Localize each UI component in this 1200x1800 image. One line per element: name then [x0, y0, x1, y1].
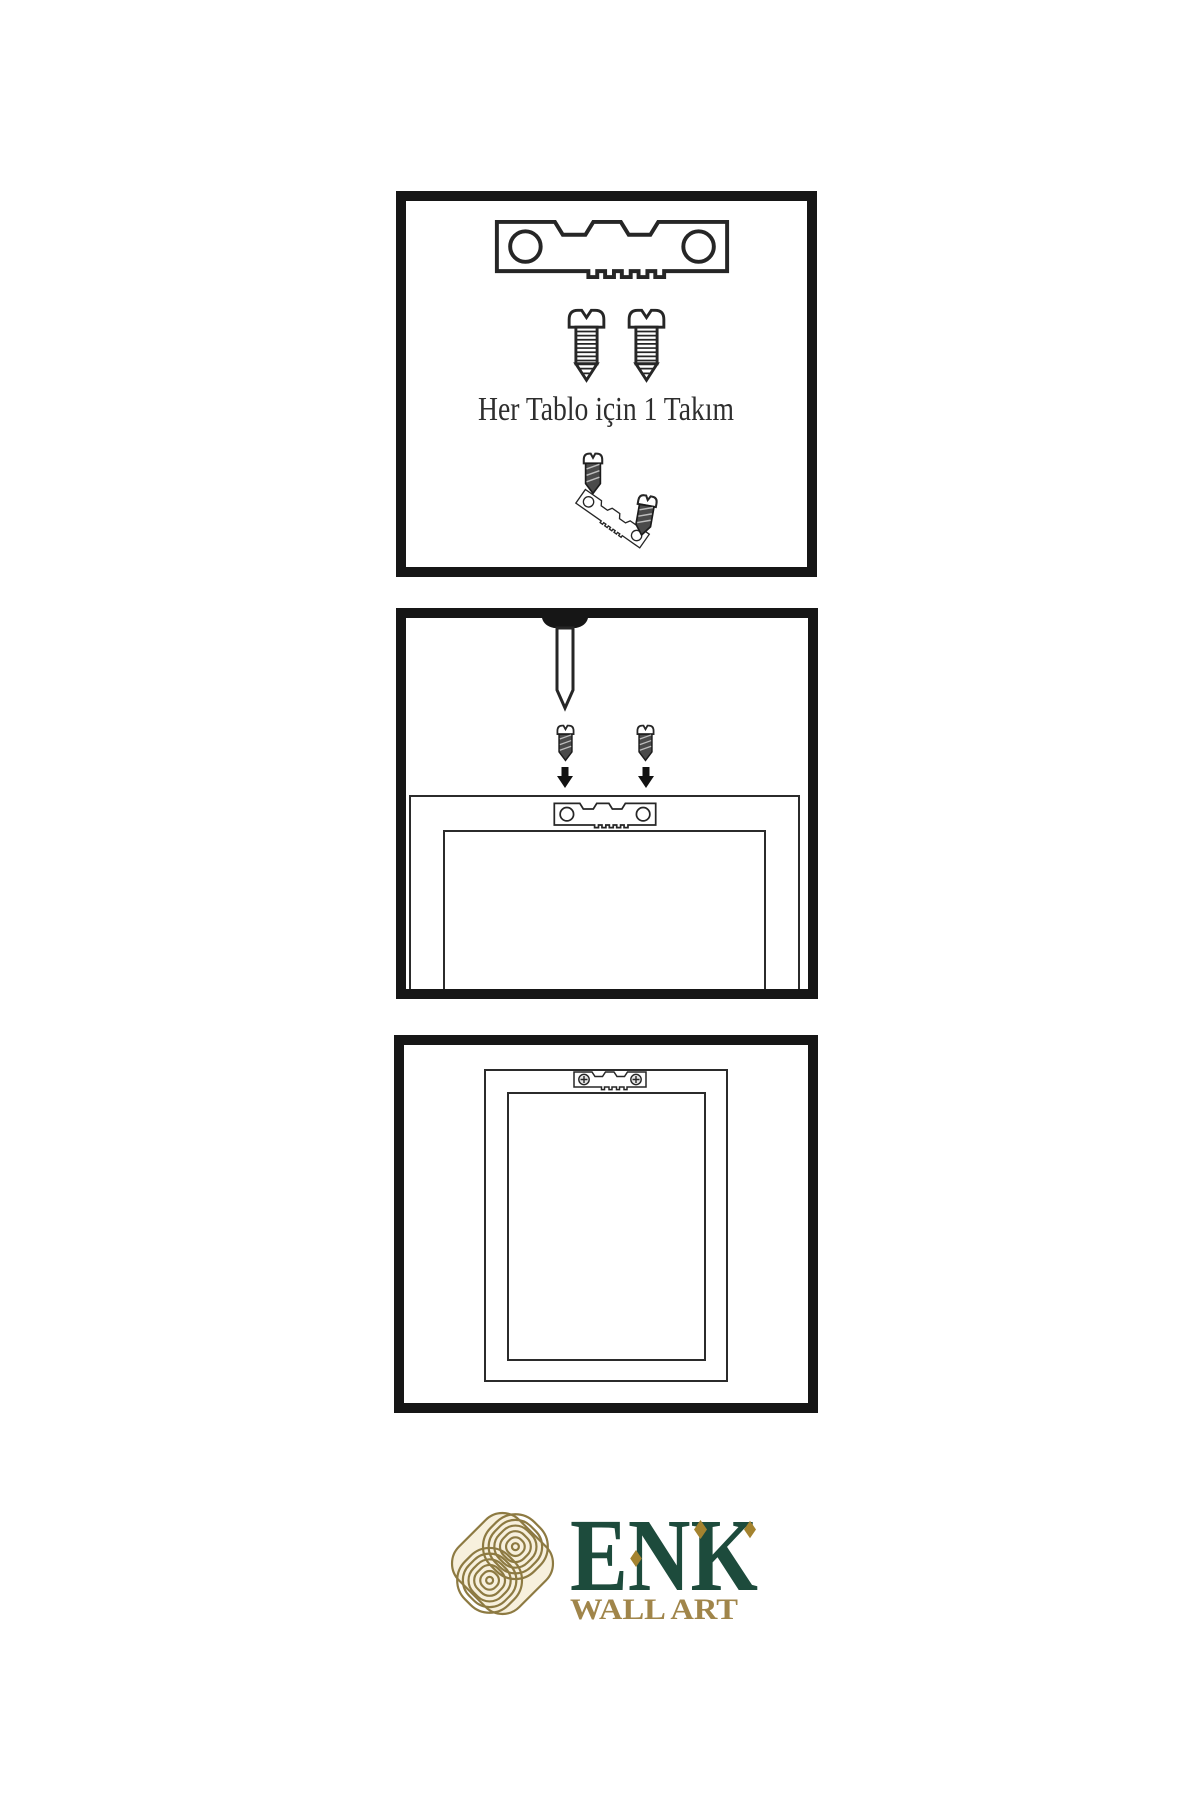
- frame-back-inner: [443, 830, 766, 999]
- brand-name: ENK: [568, 1508, 768, 1600]
- panel-hardware-kit: Her Tablo için 1 Takım: [396, 191, 817, 577]
- panel-hung-frame: [394, 1035, 818, 1413]
- knot-icon: [438, 1497, 567, 1630]
- instruction-sheet: Her Tablo için 1 Takım: [0, 0, 1200, 1800]
- brand-tagline-text: WALL ART: [570, 1594, 738, 1626]
- sawtooth-hanger-icon: [553, 802, 657, 829]
- kit-caption: Her Tablo için 1 Takım: [406, 387, 807, 431]
- brand-tagline: WALL ART: [568, 1594, 768, 1626]
- sawtooth-hanger-icon: [493, 219, 731, 280]
- small-screw-icon: [555, 721, 576, 765]
- kit-caption-text: Her Tablo için 1 Takım: [478, 391, 734, 428]
- down-arrow-icon: [638, 767, 654, 788]
- screw-icon: [563, 304, 610, 385]
- small-screw-icon: [629, 490, 661, 540]
- nail-icon: [542, 618, 588, 718]
- mounted-hanger-icon: [573, 1071, 647, 1093]
- down-arrow-icon: [557, 767, 573, 788]
- diamond-icon: [744, 1520, 756, 1539]
- hanging-frame-opening: [507, 1092, 706, 1361]
- small-screw-icon: [635, 721, 656, 765]
- brand-name-text: ENK: [570, 1508, 758, 1600]
- diamond-icon: [630, 1550, 642, 1567]
- screw-icon: [623, 304, 670, 385]
- panel-mounting-steps: [396, 608, 818, 999]
- diamond-icon: [694, 1520, 707, 1539]
